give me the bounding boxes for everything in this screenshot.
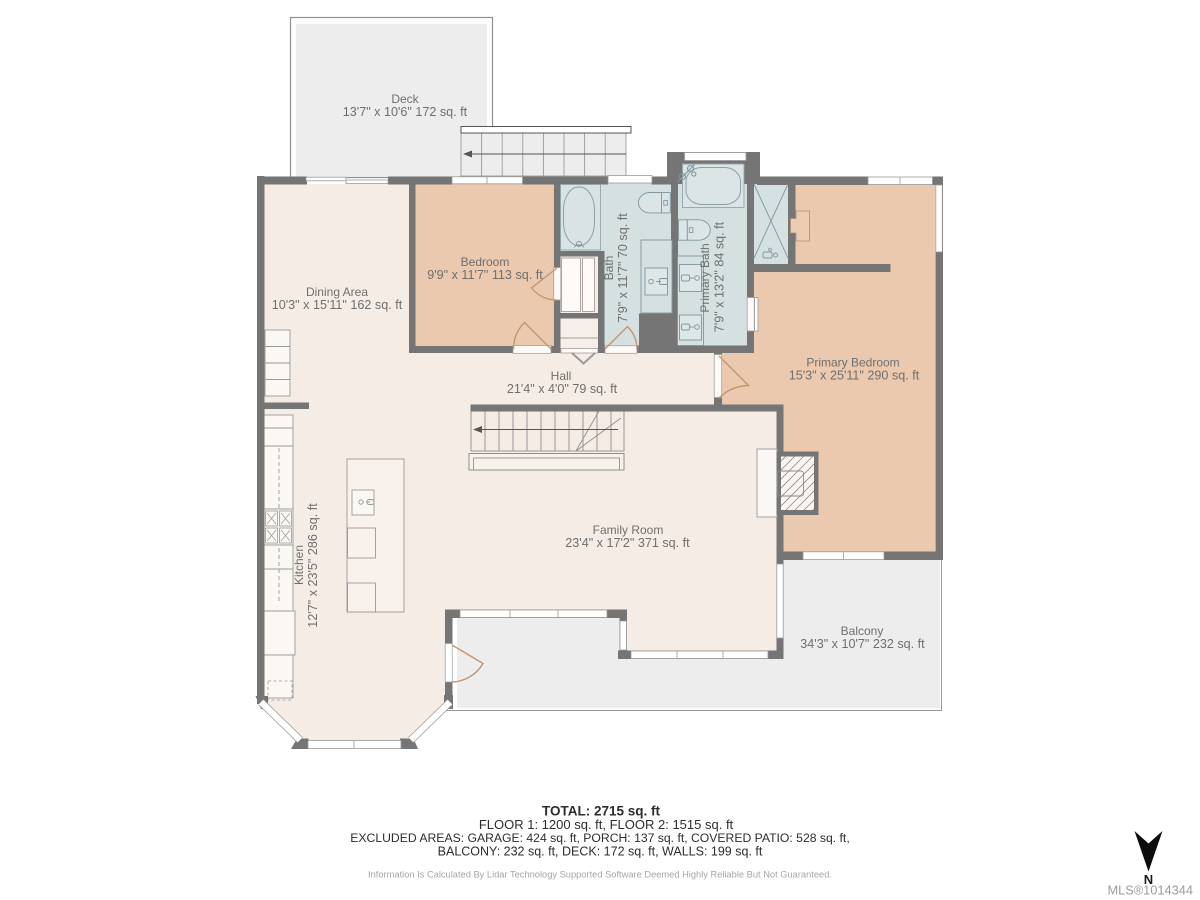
svg-text:Family Room: Family Room — [593, 523, 664, 537]
svg-text:13'7" x 10'6" 172 sq. ft: 13'7" x 10'6" 172 sq. ft — [343, 105, 468, 119]
svg-text:Kitchen: Kitchen — [292, 545, 306, 585]
svg-text:12'7" x 23'5" 286 sq. ft: 12'7" x 23'5" 286 sq. ft — [306, 503, 320, 628]
svg-text:7'9" x 13'2" 84 sq. ft: 7'9" x 13'2" 84 sq. ft — [713, 221, 727, 332]
svg-text:10'3" x 15'11" 162 sq. ft: 10'3" x 15'11" 162 sq. ft — [272, 298, 403, 312]
svg-text:Bath: Bath — [602, 256, 616, 281]
svg-text:15'3" x 25'11" 290 sq. ft: 15'3" x 25'11" 290 sq. ft — [789, 369, 920, 383]
svg-text:23'4" x 17'2" 371 sq. ft: 23'4" x 17'2" 371 sq. ft — [565, 536, 690, 550]
svg-text:Deck: Deck — [391, 92, 419, 106]
svg-text:Dining Area: Dining Area — [306, 285, 368, 299]
svg-text:FLOOR 1: 1200 sq. ft, FLOOR 2:: FLOOR 1: 1200 sq. ft, FLOOR 2: 1515 sq. … — [479, 817, 734, 832]
svg-text:EXCLUDED AREAS: GARAGE: 424 sq: EXCLUDED AREAS: GARAGE: 424 sq. ft, PORC… — [350, 831, 849, 845]
svg-text:Primary Bedroom: Primary Bedroom — [806, 356, 899, 370]
svg-text:Information Is Calculated By L: Information Is Calculated By Lidar Techn… — [368, 870, 832, 880]
svg-text:BALCONY: 232 sq. ft, DECK: 172: BALCONY: 232 sq. ft, DECK: 172 sq. ft, W… — [438, 845, 763, 859]
svg-text:Balcony: Balcony — [841, 624, 884, 638]
svg-text:34'3" x 10'7" 232 sq. ft: 34'3" x 10'7" 232 sq. ft — [800, 637, 925, 651]
svg-text:Hall: Hall — [551, 369, 572, 383]
svg-text:21'4" x 4'0" 79 sq. ft: 21'4" x 4'0" 79 sq. ft — [507, 382, 618, 396]
svg-text:MLS®1014344: MLS®1014344 — [1107, 883, 1193, 898]
svg-text:Primary Bath: Primary Bath — [698, 243, 712, 312]
svg-text:Bedroom: Bedroom — [461, 255, 510, 269]
svg-text:7'9" x 11'7" 70 sq. ft: 7'9" x 11'7" 70 sq. ft — [616, 213, 630, 323]
svg-text:9'9" x 11'7" 113 sq. ft: 9'9" x 11'7" 113 sq. ft — [427, 268, 543, 282]
